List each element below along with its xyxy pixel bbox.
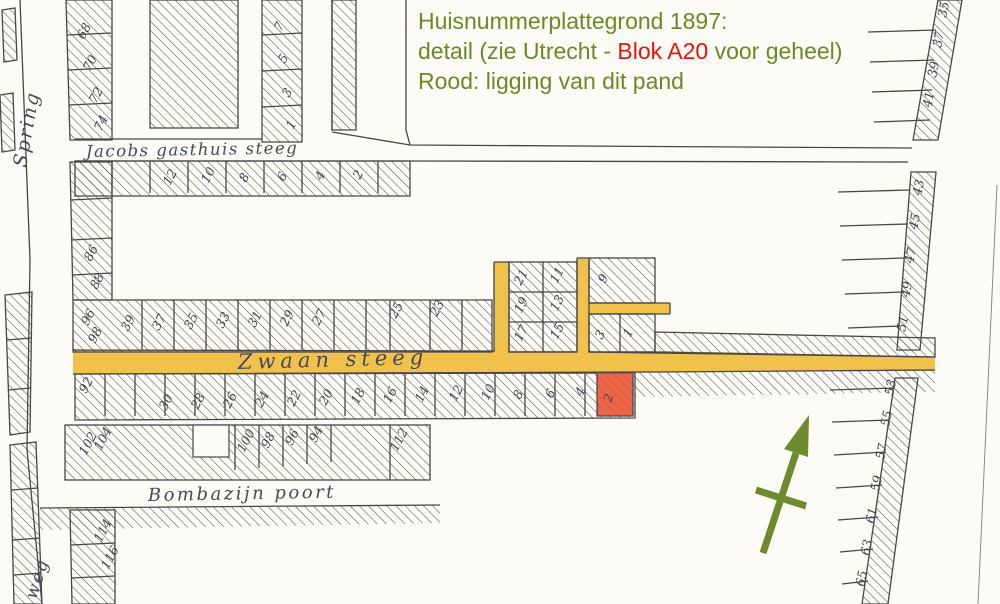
annotation-line1: Huisnummerplattegrond 1897:: [418, 6, 842, 36]
annotation-line2: detail (zie Utrecht - Blok A20 voor gehe…: [418, 36, 842, 66]
annotation-blok-a20: Blok A20: [617, 38, 708, 64]
street-label-zwaan-steeg: Zwaan steeg: [237, 345, 429, 374]
right-street-strip: [830, 0, 997, 604]
annotation-block: Huisnummerplattegrond 1897: detail (zie …: [418, 6, 842, 96]
annotation-line3: Rood: ligging van dit pand: [418, 66, 842, 96]
scanned-map-page: { "annotation": { "line1": "Huisnummerpl…: [0, 0, 1000, 604]
north-arrow-icon: [756, 415, 809, 553]
street-label-jacobs-gasthuis-steeg: Jacobs gasthuis steeg: [83, 138, 299, 161]
annotation-line2-suffix: voor geheel): [708, 38, 842, 64]
annotation-line2-prefix: detail (zie Utrecht -: [418, 38, 617, 64]
street-label-bombazijn-poort: Bombazijn poort: [147, 482, 336, 506]
